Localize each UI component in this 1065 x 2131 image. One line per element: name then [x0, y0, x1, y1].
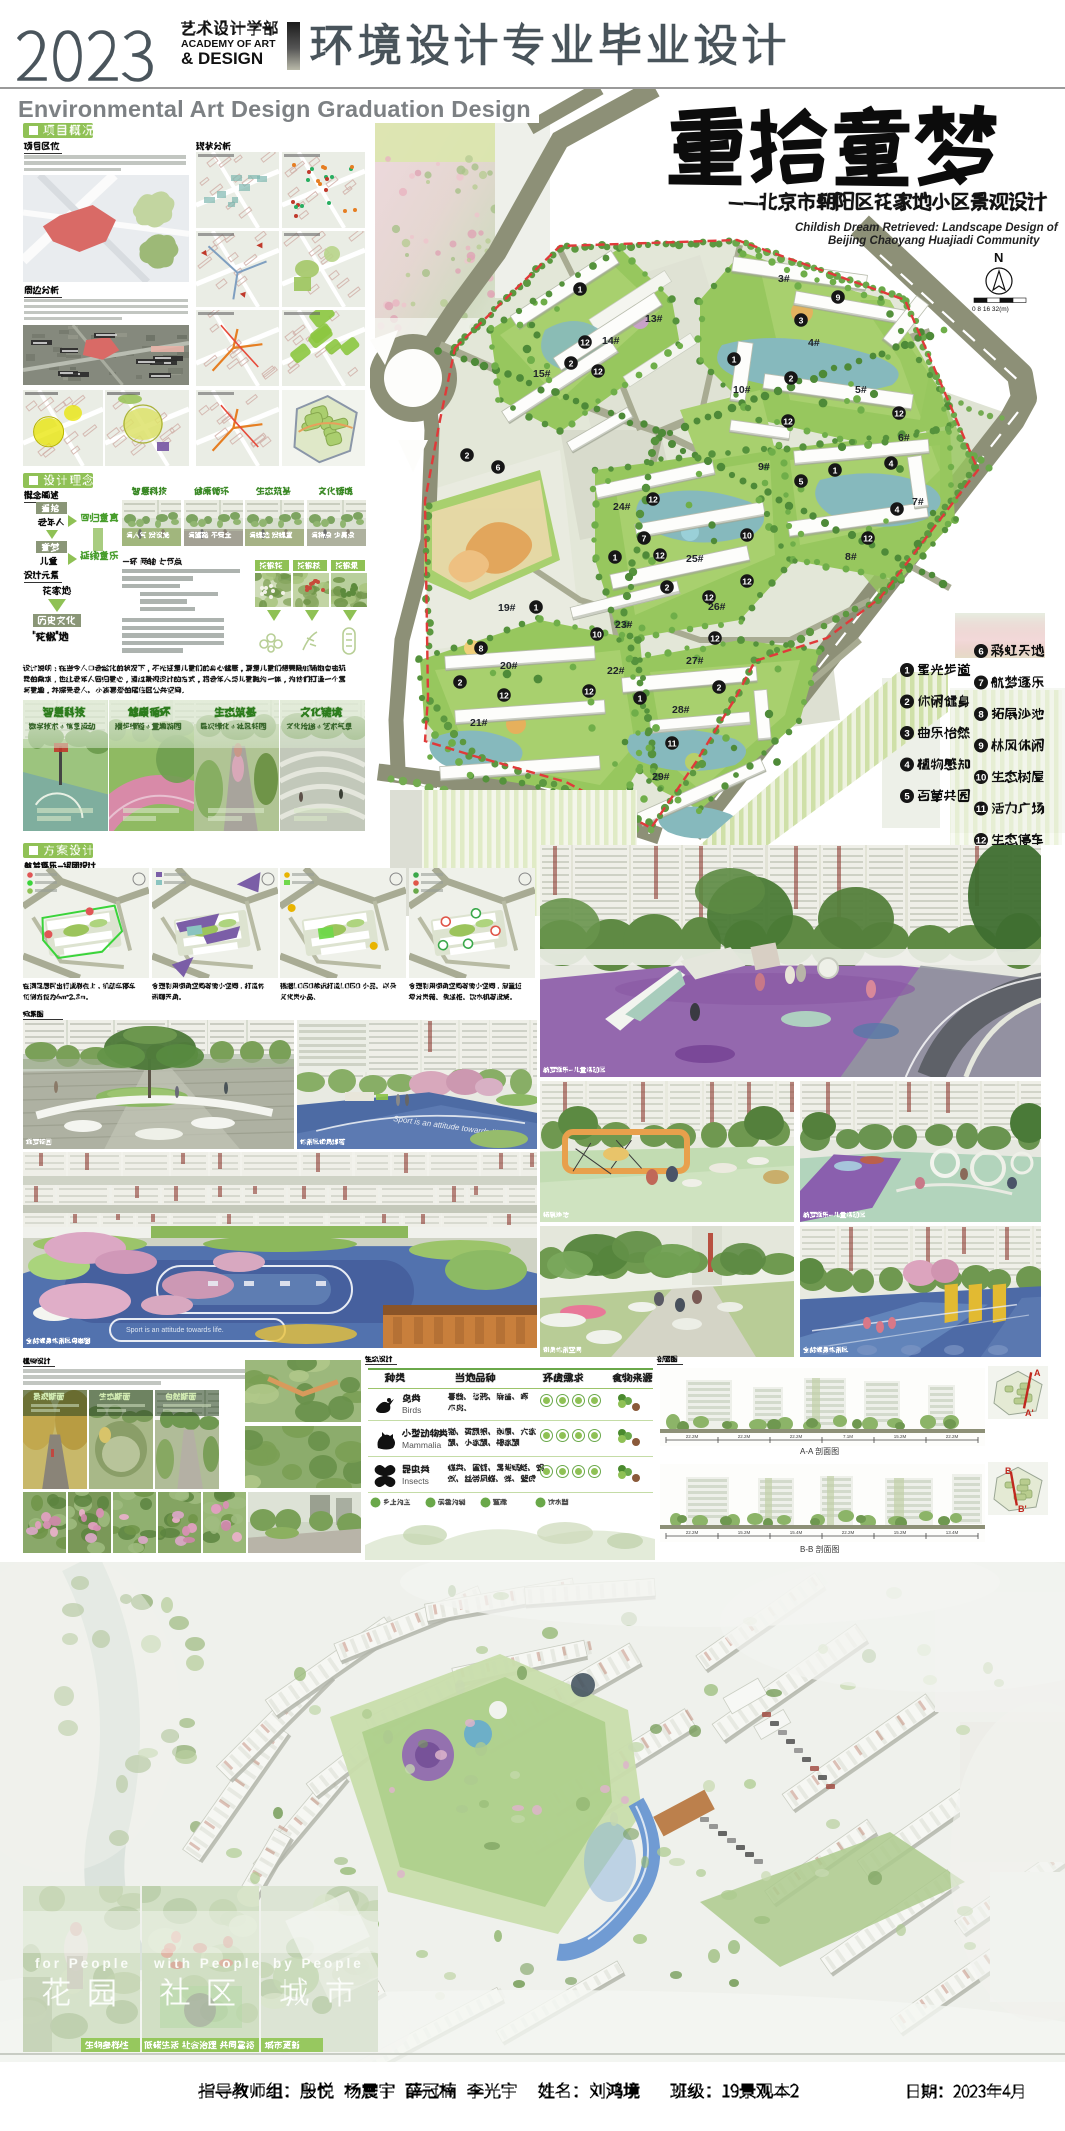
svg-text:12: 12: [593, 367, 603, 377]
svg-text:4: 4: [889, 459, 894, 469]
svg-text:4#: 4#: [808, 337, 820, 349]
svg-text:Sport is an attitude towards l: Sport is an attitude towards life.: [126, 1327, 224, 1334]
svg-text:15.4M: 15.4M: [790, 1530, 803, 1535]
svg-text:2: 2: [458, 678, 463, 688]
svg-text:7: 7: [642, 534, 647, 544]
svg-text:12: 12: [584, 687, 594, 697]
svg-text:0 8 16 32(m): 0 8 16 32(m): [972, 306, 1009, 313]
svg-text:19#: 19#: [498, 602, 516, 614]
svg-text:3: 3: [904, 729, 909, 740]
svg-text:A': A': [1025, 1408, 1034, 1418]
svg-text:20#: 20#: [500, 660, 518, 672]
svg-text:5#: 5#: [855, 384, 867, 396]
svg-text:22.2M: 22.2M: [686, 1530, 699, 1535]
svg-text:6: 6: [496, 463, 501, 473]
svg-text:6#: 6#: [898, 432, 910, 444]
svg-text:B': B': [1018, 1504, 1027, 1514]
svg-text:12: 12: [704, 593, 714, 603]
svg-text:4: 4: [895, 505, 900, 515]
svg-text:12: 12: [783, 417, 793, 427]
svg-text:10: 10: [976, 773, 987, 784]
svg-text:2: 2: [717, 683, 722, 693]
svg-text:13.4M: 13.4M: [946, 1530, 959, 1535]
svg-text:21#: 21#: [470, 717, 488, 729]
svg-text:23#: 23#: [615, 619, 633, 631]
svg-text:2: 2: [904, 697, 909, 708]
svg-text:1: 1: [732, 355, 737, 365]
svg-text:B: B: [1005, 1466, 1012, 1476]
svg-text:12: 12: [742, 577, 752, 587]
svg-text:6: 6: [978, 647, 983, 658]
svg-text:A: A: [1034, 1368, 1041, 1378]
svg-text:2: 2: [665, 583, 670, 593]
svg-text:15#: 15#: [533, 368, 551, 380]
svg-text:13#: 13#: [645, 313, 663, 325]
svg-text:5: 5: [799, 477, 804, 487]
svg-text:4: 4: [904, 760, 910, 771]
svg-text:3#: 3#: [778, 273, 790, 285]
svg-text:7.1M: 7.1M: [843, 1434, 853, 1439]
svg-text:12: 12: [648, 495, 658, 505]
svg-text:24#: 24#: [613, 501, 631, 513]
svg-text:15.2M: 15.2M: [738, 1530, 751, 1535]
svg-text:2: 2: [789, 374, 794, 384]
svg-text:1: 1: [534, 603, 539, 613]
svg-text:N: N: [994, 250, 1003, 265]
svg-text:3: 3: [799, 316, 804, 326]
svg-text:29#: 29#: [652, 771, 670, 783]
svg-text:1: 1: [578, 285, 583, 295]
svg-text:8: 8: [479, 644, 484, 654]
svg-text:10#: 10#: [733, 384, 751, 396]
svg-text:9: 9: [836, 293, 841, 303]
svg-text:12: 12: [499, 691, 509, 701]
svg-text:12: 12: [580, 338, 590, 348]
svg-text:1: 1: [613, 553, 618, 563]
svg-text:2: 2: [465, 451, 470, 461]
svg-text:28#: 28#: [672, 704, 690, 716]
svg-text:10: 10: [742, 531, 752, 541]
svg-text:22.2M: 22.2M: [842, 1530, 855, 1535]
svg-text:9#: 9#: [758, 461, 770, 473]
svg-text:12: 12: [894, 409, 904, 419]
svg-text:9: 9: [978, 741, 983, 752]
svg-text:12: 12: [710, 634, 720, 644]
svg-text:22.2M: 22.2M: [790, 1434, 803, 1439]
svg-text:22#: 22#: [607, 665, 625, 677]
svg-text:22.2M: 22.2M: [686, 1434, 699, 1439]
svg-text:10: 10: [592, 630, 602, 640]
svg-text:12: 12: [655, 551, 665, 561]
svg-text:7: 7: [978, 678, 983, 689]
svg-text:7#: 7#: [912, 496, 924, 508]
svg-text:15.2M: 15.2M: [894, 1530, 907, 1535]
svg-text:8#: 8#: [845, 551, 857, 563]
svg-text:14#: 14#: [602, 335, 620, 347]
svg-text:22.2M: 22.2M: [738, 1434, 751, 1439]
svg-text:25#: 25#: [686, 553, 704, 565]
svg-text:1: 1: [833, 466, 838, 476]
svg-text:8: 8: [978, 710, 984, 721]
svg-text:22.2M: 22.2M: [946, 1434, 959, 1439]
svg-text:2: 2: [569, 359, 574, 369]
svg-text:5: 5: [904, 792, 910, 803]
svg-text:15.2M: 15.2M: [894, 1434, 907, 1439]
svg-text:11: 11: [976, 804, 987, 815]
svg-text:27#: 27#: [686, 655, 704, 667]
svg-text:1: 1: [638, 694, 643, 704]
svg-text:1: 1: [904, 666, 910, 677]
svg-text:12: 12: [863, 534, 873, 544]
svg-text:11: 11: [667, 739, 676, 749]
